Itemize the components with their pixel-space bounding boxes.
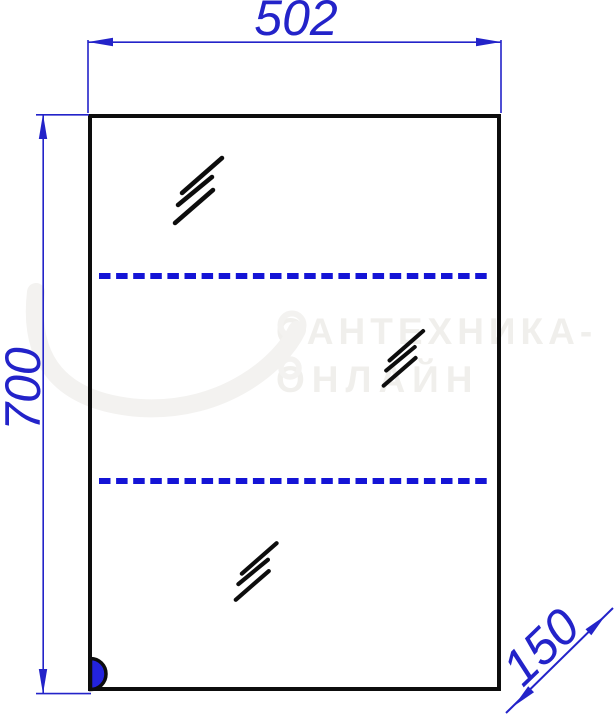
mirror-glass-icon [384,331,423,386]
dimension-width-value: 502 [226,0,366,43]
arrow-up-icon [39,114,47,139]
mirror-glass-icon [236,543,277,600]
arrow-left-icon [88,38,113,46]
mirror-glass-icon [175,158,222,223]
arrow-right-icon [476,38,501,46]
watermark-ring-bottom [281,359,299,377]
door-hinge-icon [91,659,106,690]
watermark-logo-swoosh [35,292,304,408]
arrow-down-icon [39,669,47,694]
drawing-linework [0,0,614,714]
mirror-hatch-line [175,190,213,223]
dimension-height-value: 700 [0,319,48,459]
dimension-width-502 [88,38,501,113]
watermark-swoosh-curve [35,292,297,408]
technical-drawing-canvas: САНТЕХНИКА- ОНЛАЙН [0,0,614,714]
